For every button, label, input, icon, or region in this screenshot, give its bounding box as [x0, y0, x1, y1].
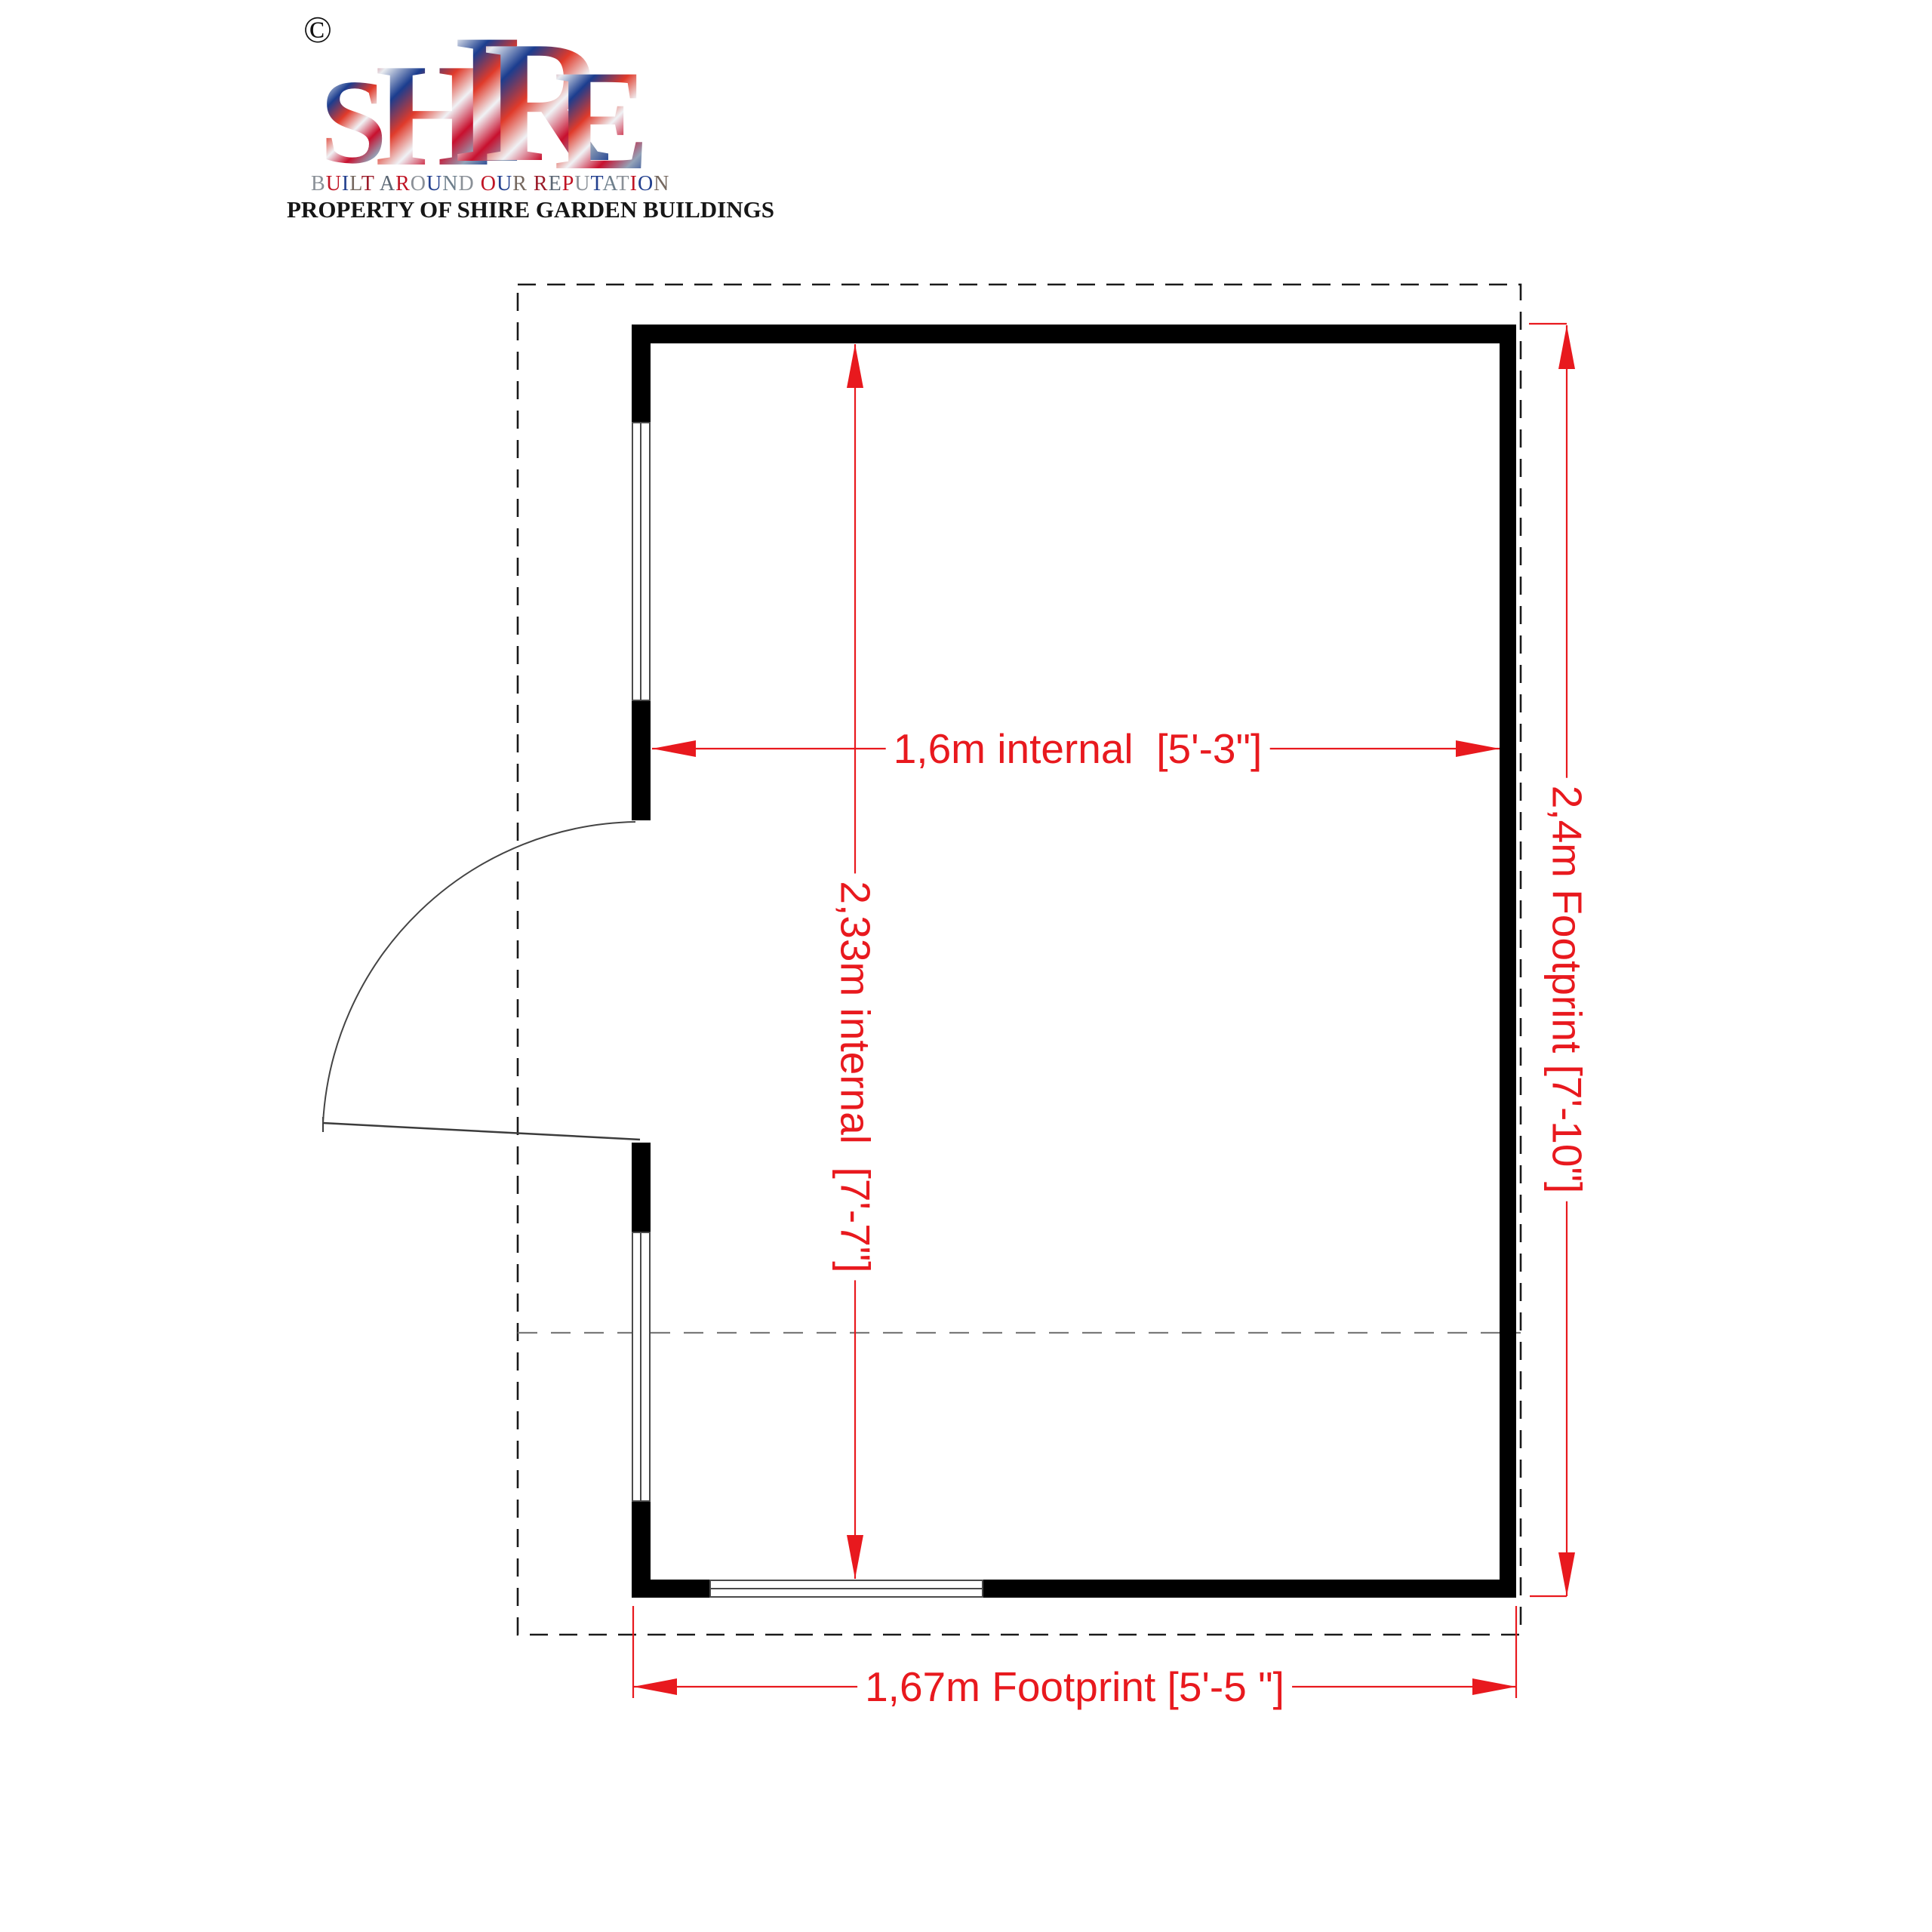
wall-left-door-top-jamb: [632, 700, 651, 820]
arrow-right-icon: [1456, 740, 1500, 757]
door: [323, 822, 640, 1140]
wall-left-top-segment: [632, 325, 651, 423]
arrow-right-icon: [1472, 1678, 1516, 1695]
label-footprint-width: 1,67m Footprint [5'-5 "]: [857, 1663, 1292, 1712]
arrow-down-icon: [1558, 1552, 1575, 1596]
arrow-left-icon: [652, 740, 696, 757]
wall-left-door-bottom-jamb: [632, 1143, 651, 1232]
label-internal-width: 1,6m internal [5'-3"]: [886, 724, 1270, 774]
wall-bottom-right-segment: [983, 1580, 1516, 1598]
label-footprint-depth: 2,4m Footprint [7'-10"]: [1543, 778, 1592, 1201]
arrow-up-icon: [847, 344, 863, 388]
floorplan-drawing: [0, 0, 1932, 1932]
window-bottom: [710, 1580, 983, 1597]
footprint-dashed-outline: [518, 285, 1521, 1635]
wall-top: [632, 325, 1516, 343]
arrow-up-icon: [1558, 325, 1575, 369]
wall-right: [1500, 325, 1516, 1598]
door-swing-arc: [323, 822, 635, 1123]
door-leaf: [323, 1123, 640, 1140]
window-left-lower: [632, 1232, 650, 1501]
wall-left-bottom-segment: [632, 1501, 651, 1598]
floorplan-page: © S H I R E BUILT AROUND OUR REPUTATION …: [0, 0, 1932, 1932]
window-left-upper: [632, 423, 650, 700]
arrow-left-icon: [633, 1678, 677, 1695]
arrow-down-icon: [847, 1535, 863, 1579]
label-internal-depth: 2,33m internal [7'-7"]: [831, 873, 880, 1280]
